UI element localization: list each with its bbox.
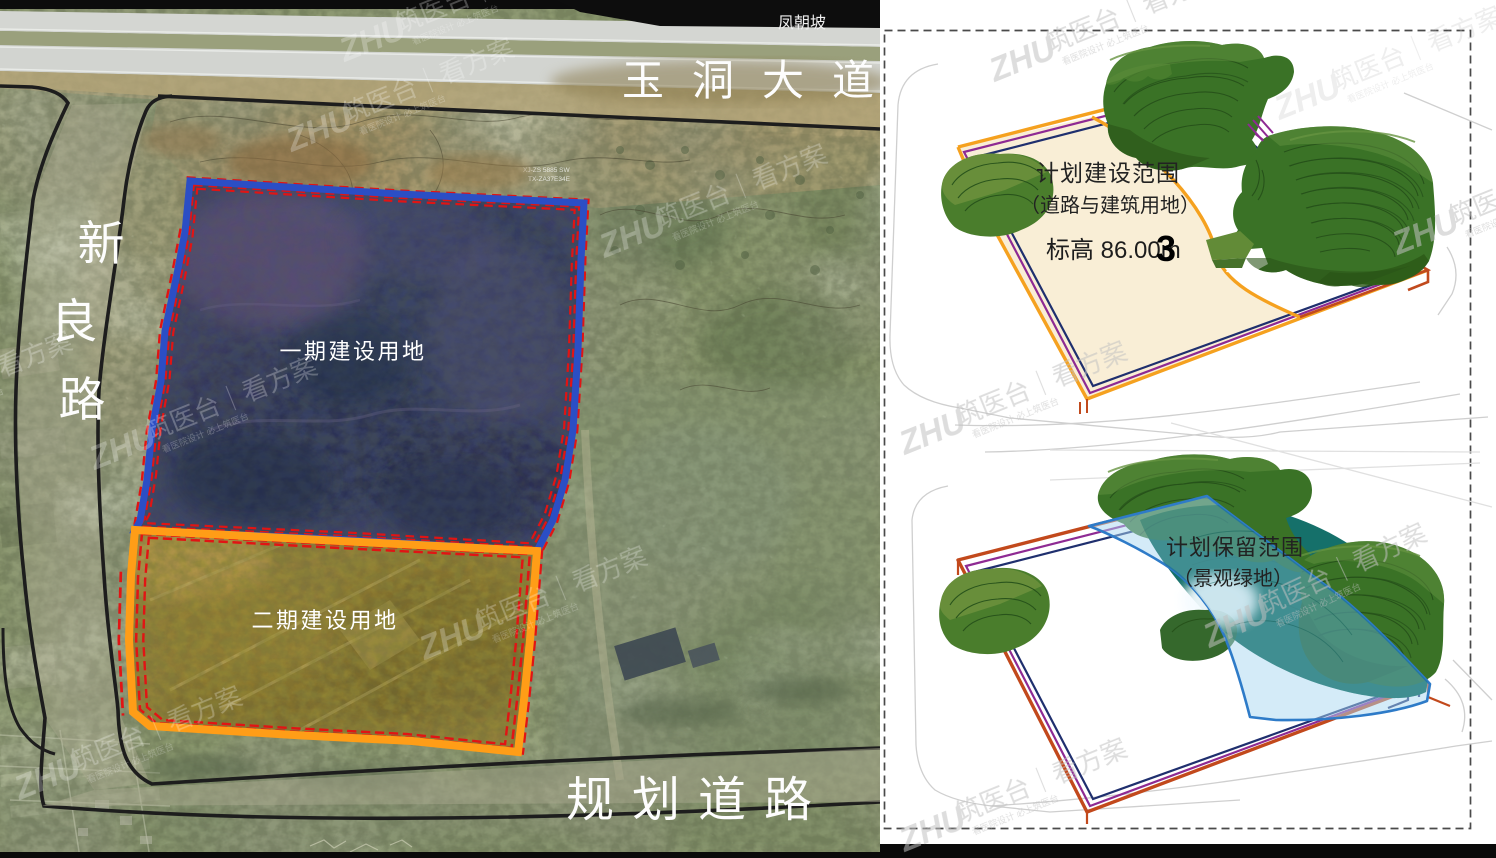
svg-text:玉洞大道: 玉洞大道: [622, 57, 902, 104]
svg-text:路: 路: [59, 373, 106, 426]
svg-text:良: 良: [51, 295, 98, 348]
svg-text:（景观绿地）: （景观绿地）: [1173, 567, 1293, 590]
svg-text:一期建设用地: 一期建设用地: [279, 339, 426, 364]
svg-text:计划保留范围: 计划保留范围: [1166, 535, 1304, 560]
svg-text:TX-ZA37E34E: TX-ZA37E34E: [528, 176, 571, 183]
svg-text:规划道路: 规划道路: [566, 774, 830, 827]
svg-text:计划建设范围: 计划建设范围: [1036, 160, 1180, 186]
svg-text:凤朝坡: 凤朝坡: [778, 14, 826, 32]
svg-text:新: 新: [78, 217, 125, 270]
svg-text:（道路与建筑用地）: （道路与建筑用地）: [1020, 194, 1200, 217]
svg-text:二期建设用地: 二期建设用地: [251, 608, 398, 633]
svg-text:3: 3: [1156, 228, 1176, 269]
